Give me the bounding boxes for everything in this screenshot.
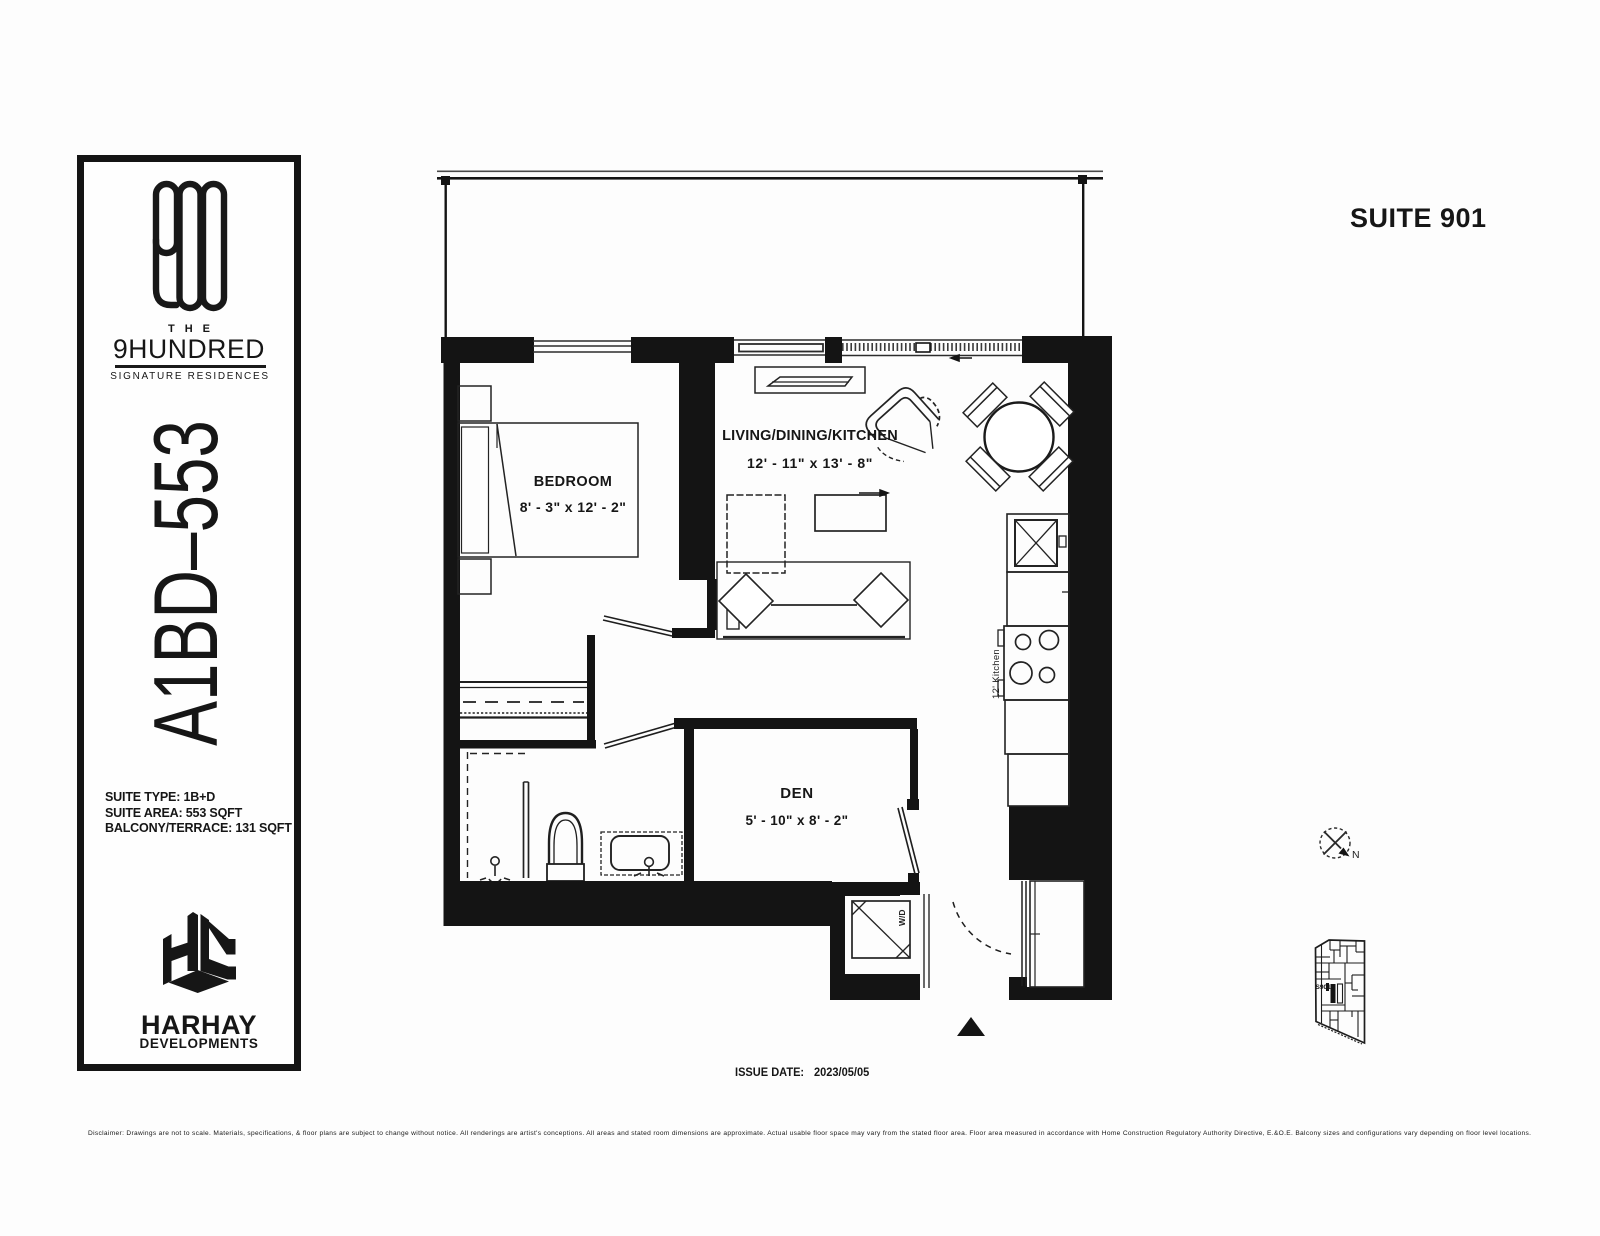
- svg-text:W/D: W/D: [897, 909, 907, 926]
- svg-text:S901: S901: [1316, 984, 1332, 991]
- svg-text:12' Kitchen: 12' Kitchen: [991, 649, 1002, 699]
- svg-text:N: N: [1352, 849, 1360, 861]
